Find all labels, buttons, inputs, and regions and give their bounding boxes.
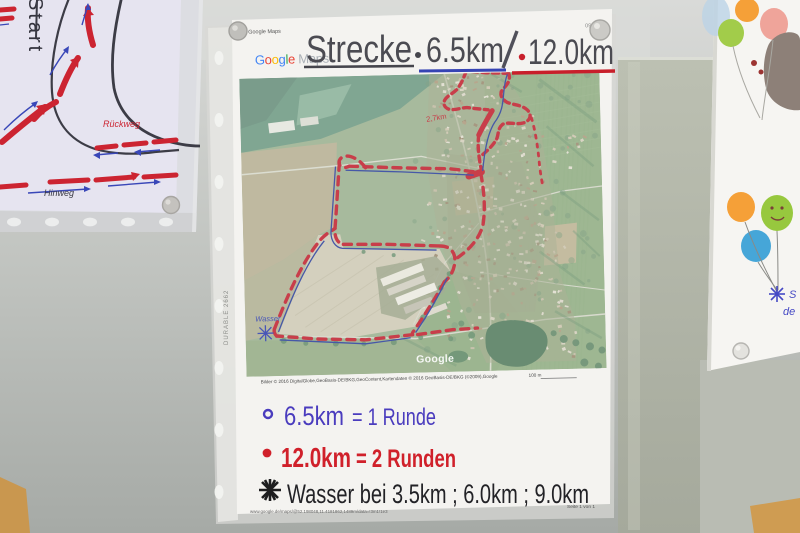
svg-text:6.5km: 6.5km <box>284 401 344 431</box>
svg-text:DURABLE 2662: DURABLE 2662 <box>224 290 230 345</box>
svg-text:Wasser bei 3.5km ; 6.0km ; 9.0: Wasser bei 3.5km ; 6.0km ; 9.0km <box>287 479 589 509</box>
svg-text:= 1 Runde: = 1 Runde <box>352 404 436 431</box>
svg-text:Rückweg: Rückweg <box>103 119 140 129</box>
svg-text:S: S <box>789 289 797 301</box>
svg-text:Seite 1 von 1: Seite 1 von 1 <box>567 504 595 510</box>
svg-text:12.0km: 12.0km <box>281 442 351 473</box>
svg-text:Strecke: Strecke <box>306 29 412 71</box>
svg-text:www.google.de/maps/@52.198048,: www.google.de/maps/@52.198048,11.4181862… <box>250 509 388 514</box>
svg-text:= 2 Runden: = 2 Runden <box>356 445 456 473</box>
svg-text:Google Maps: Google Maps <box>248 29 281 36</box>
svg-text:Hinweg: Hinweg <box>44 188 74 198</box>
svg-text:Start: Start <box>24 0 46 54</box>
svg-text:100 m: 100 m <box>529 373 542 378</box>
svg-text:de: de <box>783 306 795 318</box>
svg-text:6.5km: 6.5km <box>426 31 504 70</box>
